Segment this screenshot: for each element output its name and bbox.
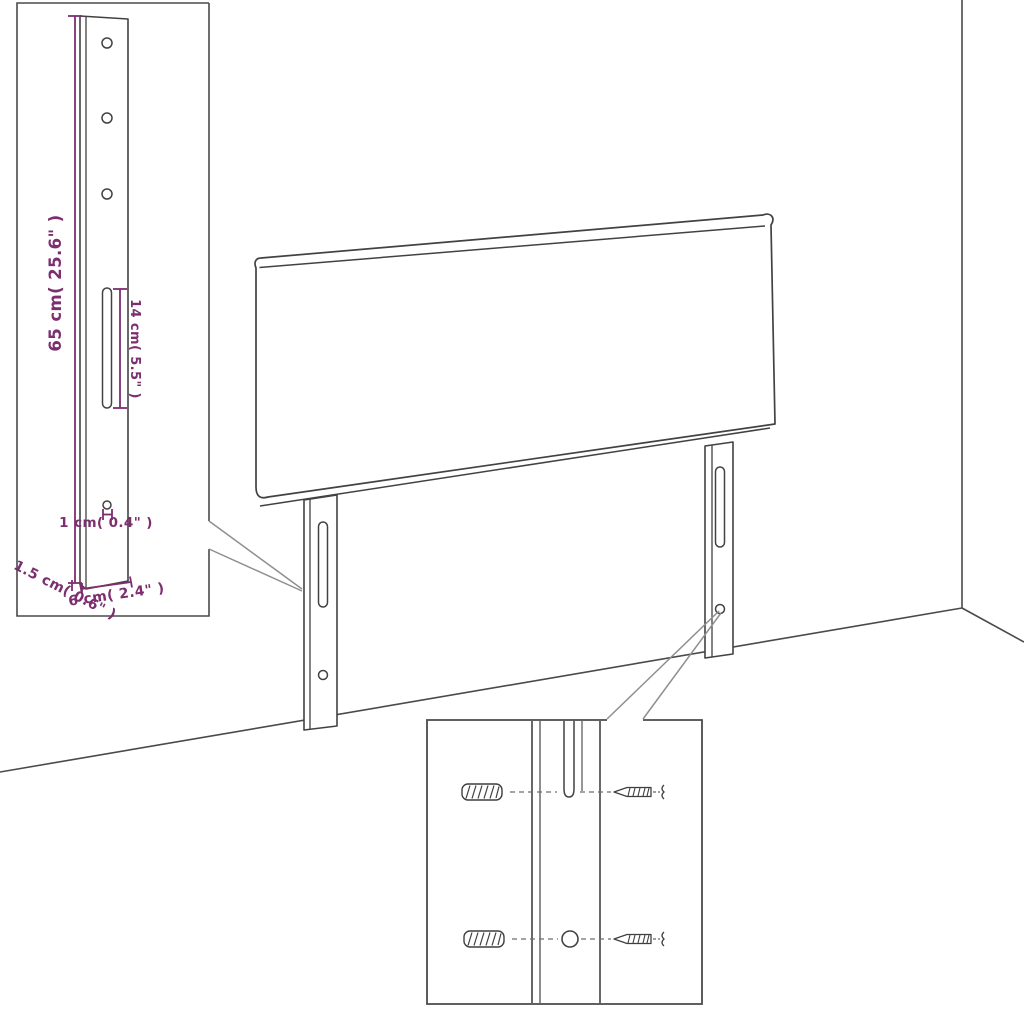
detail-round-hole [562, 931, 578, 947]
label-slot-length: 14 cm( 5.5" ) [127, 299, 142, 399]
inset-leg-hole-2 [102, 113, 112, 123]
inset-leg-hole-1 [102, 38, 112, 48]
inset-leg-small-hole [103, 501, 111, 509]
leader-line [643, 613, 721, 719]
floor-line-right [962, 608, 1024, 642]
label-hole-diameter: 1 cm( 0.4" ) [59, 515, 153, 531]
diagram-canvas: 65 cm( 25.6" ) 14 cm( 5.5" ) 1 cm( 0.4" … [0, 0, 1024, 1024]
callout-leader-lines [209, 521, 721, 719]
mounting-detail-inset [427, 720, 702, 1004]
headboard-panel-outline [255, 214, 775, 498]
left-leg-screw-hole [319, 671, 328, 680]
headboard-left-leg [304, 495, 337, 730]
wall-plug-icon [464, 931, 504, 947]
label-leg-height: 65 cm( 25.6" ) [46, 214, 65, 351]
wall-plug-icon [462, 784, 502, 800]
left-leg-keyhole-slot [319, 522, 328, 607]
inset-leg-slot [103, 288, 112, 408]
product-diagram: 65 cm( 25.6" ) 14 cm( 5.5" ) 1 cm( 0.4" … [0, 0, 1024, 1024]
headboard-right-leg [705, 442, 733, 658]
inset-leg-hole-3 [102, 189, 112, 199]
right-leg-keyhole-slot [716, 467, 725, 547]
headboard-panel [255, 214, 775, 506]
